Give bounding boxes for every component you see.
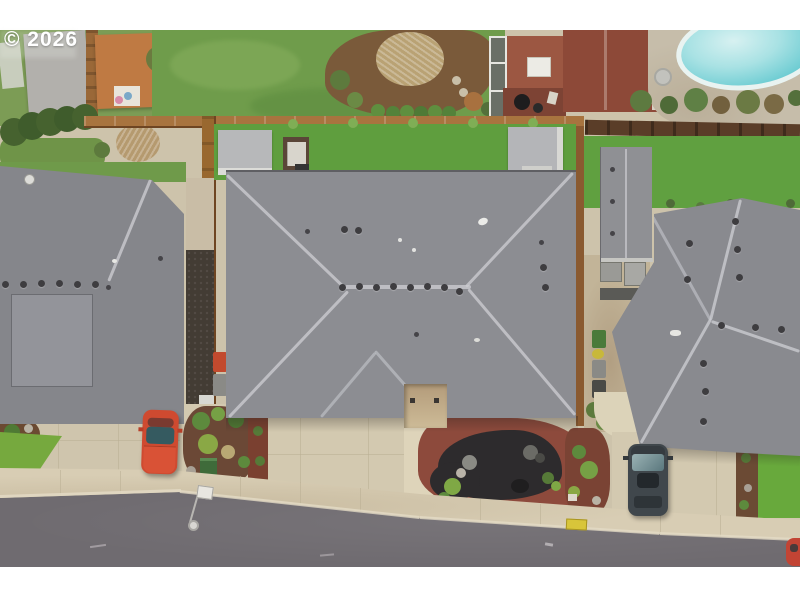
left-shed — [218, 130, 272, 170]
roof-vent — [356, 283, 363, 290]
red-car-edge-window — [790, 544, 798, 552]
bed-bush — [255, 456, 265, 466]
shrub — [330, 70, 350, 90]
center-eave-shadow — [226, 416, 578, 432]
hedge-dot — [666, 199, 675, 208]
roof-vent — [610, 231, 615, 236]
roof-vent — [610, 167, 615, 172]
street-lamp-head — [188, 520, 199, 531]
street-lamp-base — [196, 485, 214, 500]
roof-vent — [778, 326, 785, 333]
red-car-windshield — [146, 427, 175, 445]
trash-bin-red — [213, 352, 227, 372]
center-house-roof — [226, 170, 576, 418]
deck-shrub — [684, 88, 708, 112]
left-bed-rock — [24, 424, 33, 433]
right-bed-marker — [568, 494, 577, 501]
roof-vent — [355, 227, 362, 234]
bed-grass-tan — [221, 445, 235, 459]
mulch-plant — [739, 500, 749, 510]
roof-ridge — [228, 290, 349, 418]
hedge-dot — [786, 199, 795, 208]
fence-bush — [408, 118, 418, 128]
suv-windshield — [632, 454, 664, 471]
porch-post — [434, 398, 439, 403]
roof-vent — [339, 284, 346, 291]
roof-vent — [38, 280, 45, 287]
roof-white-mark — [477, 217, 489, 227]
deck-shrub-tan — [764, 94, 784, 114]
roof-vent — [424, 283, 431, 290]
roof-vent — [732, 218, 739, 225]
garden-plant-lime — [551, 481, 561, 491]
greenhouse-bar — [490, 62, 506, 64]
suv-mirror — [667, 456, 673, 460]
roof-white-mark — [112, 259, 117, 263]
garage-roof — [600, 147, 652, 262]
roof-vent — [539, 240, 544, 245]
garage-eave — [601, 258, 653, 262]
toy-blue — [124, 92, 132, 100]
deck-shrub — [788, 90, 800, 106]
roof-vent — [700, 418, 707, 425]
mulch-rock — [744, 484, 752, 492]
roof-vent — [542, 284, 549, 291]
toy-pink — [115, 96, 123, 104]
side-fence-right — [576, 126, 584, 426]
roof-vent — [305, 229, 310, 234]
roof-vent — [20, 281, 27, 288]
roof-ridge — [226, 174, 347, 290]
aerial-photo: © 2026 — [0, 0, 800, 600]
right-shed — [508, 127, 563, 170]
entry-alcove — [404, 384, 447, 428]
bin-green — [592, 330, 606, 348]
right-bed-plant — [572, 445, 586, 459]
roof-vent — [2, 281, 9, 288]
trash-bin-gray — [213, 374, 227, 396]
roof-vent — [341, 226, 348, 233]
roof-vent — [56, 280, 63, 287]
dried-grass-clump — [376, 32, 444, 86]
suv-rear-window — [634, 496, 662, 508]
roof-vent — [92, 281, 99, 288]
dark-suv — [628, 444, 668, 516]
roof-ridge — [107, 179, 152, 282]
right-bed-grass — [580, 461, 598, 479]
left-house-roof — [0, 164, 186, 424]
bin-yellow — [592, 349, 604, 359]
roof-ridge — [467, 288, 576, 416]
dried-grass-clump-left — [116, 124, 160, 162]
deck-shrub — [630, 90, 652, 112]
bed-bush-lime — [198, 434, 218, 454]
roof-white-mark — [670, 330, 681, 336]
shrub — [347, 92, 363, 108]
red-car-mirror — [177, 429, 182, 433]
roof-vent — [74, 281, 81, 288]
roof-vent — [373, 284, 380, 291]
garden-pond — [511, 479, 529, 493]
bed-bush — [211, 407, 225, 421]
brick-shed-skylight — [527, 57, 551, 77]
bed-bush — [238, 456, 250, 468]
left-side-path — [186, 178, 214, 250]
roof-ridge — [320, 352, 377, 418]
roof-ridge — [640, 319, 712, 444]
fence-bush — [288, 119, 298, 129]
deck-shrub — [660, 96, 678, 114]
lawn-light-patch — [170, 40, 300, 90]
red-car — [141, 409, 179, 474]
fence-bush — [468, 118, 478, 128]
porch-post — [410, 398, 415, 403]
yellow-marker — [566, 518, 588, 530]
satellite-dish-icon — [24, 174, 35, 185]
ac-unit — [600, 262, 622, 282]
stepping-stone — [452, 76, 461, 85]
red-car-hood — [143, 445, 176, 473]
roof-ridge — [465, 172, 574, 288]
garden-rock — [462, 455, 477, 470]
roof-vent — [686, 240, 693, 247]
right-shed-eave — [557, 127, 563, 170]
roof-white-mark — [474, 338, 480, 342]
roof-ridge — [625, 149, 627, 259]
deck-shrub-tan — [712, 96, 730, 114]
bed-bush — [192, 412, 210, 430]
dark-pond — [514, 94, 530, 110]
roof-white-mark — [412, 248, 416, 252]
roof-vent — [718, 322, 725, 329]
roof-vent — [456, 288, 463, 295]
roof-vent — [684, 276, 691, 283]
right-bed-stone — [592, 496, 601, 505]
hot-tub-cover — [287, 142, 306, 166]
red-car-mirror — [138, 427, 143, 431]
suv-sunroof — [637, 473, 659, 488]
roof-vent — [700, 360, 707, 367]
roof-vent — [158, 256, 163, 261]
bin-gray — [592, 360, 606, 378]
roof-vent — [441, 284, 448, 291]
red-car-edge — [786, 538, 800, 566]
roof-vent — [736, 274, 743, 281]
roof-vent — [390, 283, 397, 290]
garden-rock — [456, 468, 466, 478]
roof-vent — [407, 284, 414, 291]
roof-ridge — [651, 216, 712, 321]
roof-vent — [702, 388, 709, 395]
roof-vent — [414, 332, 419, 337]
letterbox-bottom — [0, 567, 800, 600]
watermark-text: © 2026 — [4, 28, 78, 52]
letterbox-top — [0, 0, 800, 30]
shrub — [94, 142, 110, 158]
roof-vent — [106, 285, 111, 290]
garden-rock — [535, 453, 545, 463]
deck-shrub — [736, 90, 760, 114]
roof-vent — [752, 324, 759, 331]
patio-table — [654, 68, 672, 86]
roof-vent — [540, 264, 547, 271]
dark-pot — [533, 103, 543, 113]
fence-bush — [348, 118, 358, 128]
suv-mirror — [623, 456, 629, 460]
roof-vent — [610, 199, 615, 204]
left-roof-dormer — [12, 295, 92, 386]
red-roof-ridge — [604, 30, 607, 110]
roof-white-mark — [398, 238, 402, 242]
roof-vent — [734, 246, 741, 253]
